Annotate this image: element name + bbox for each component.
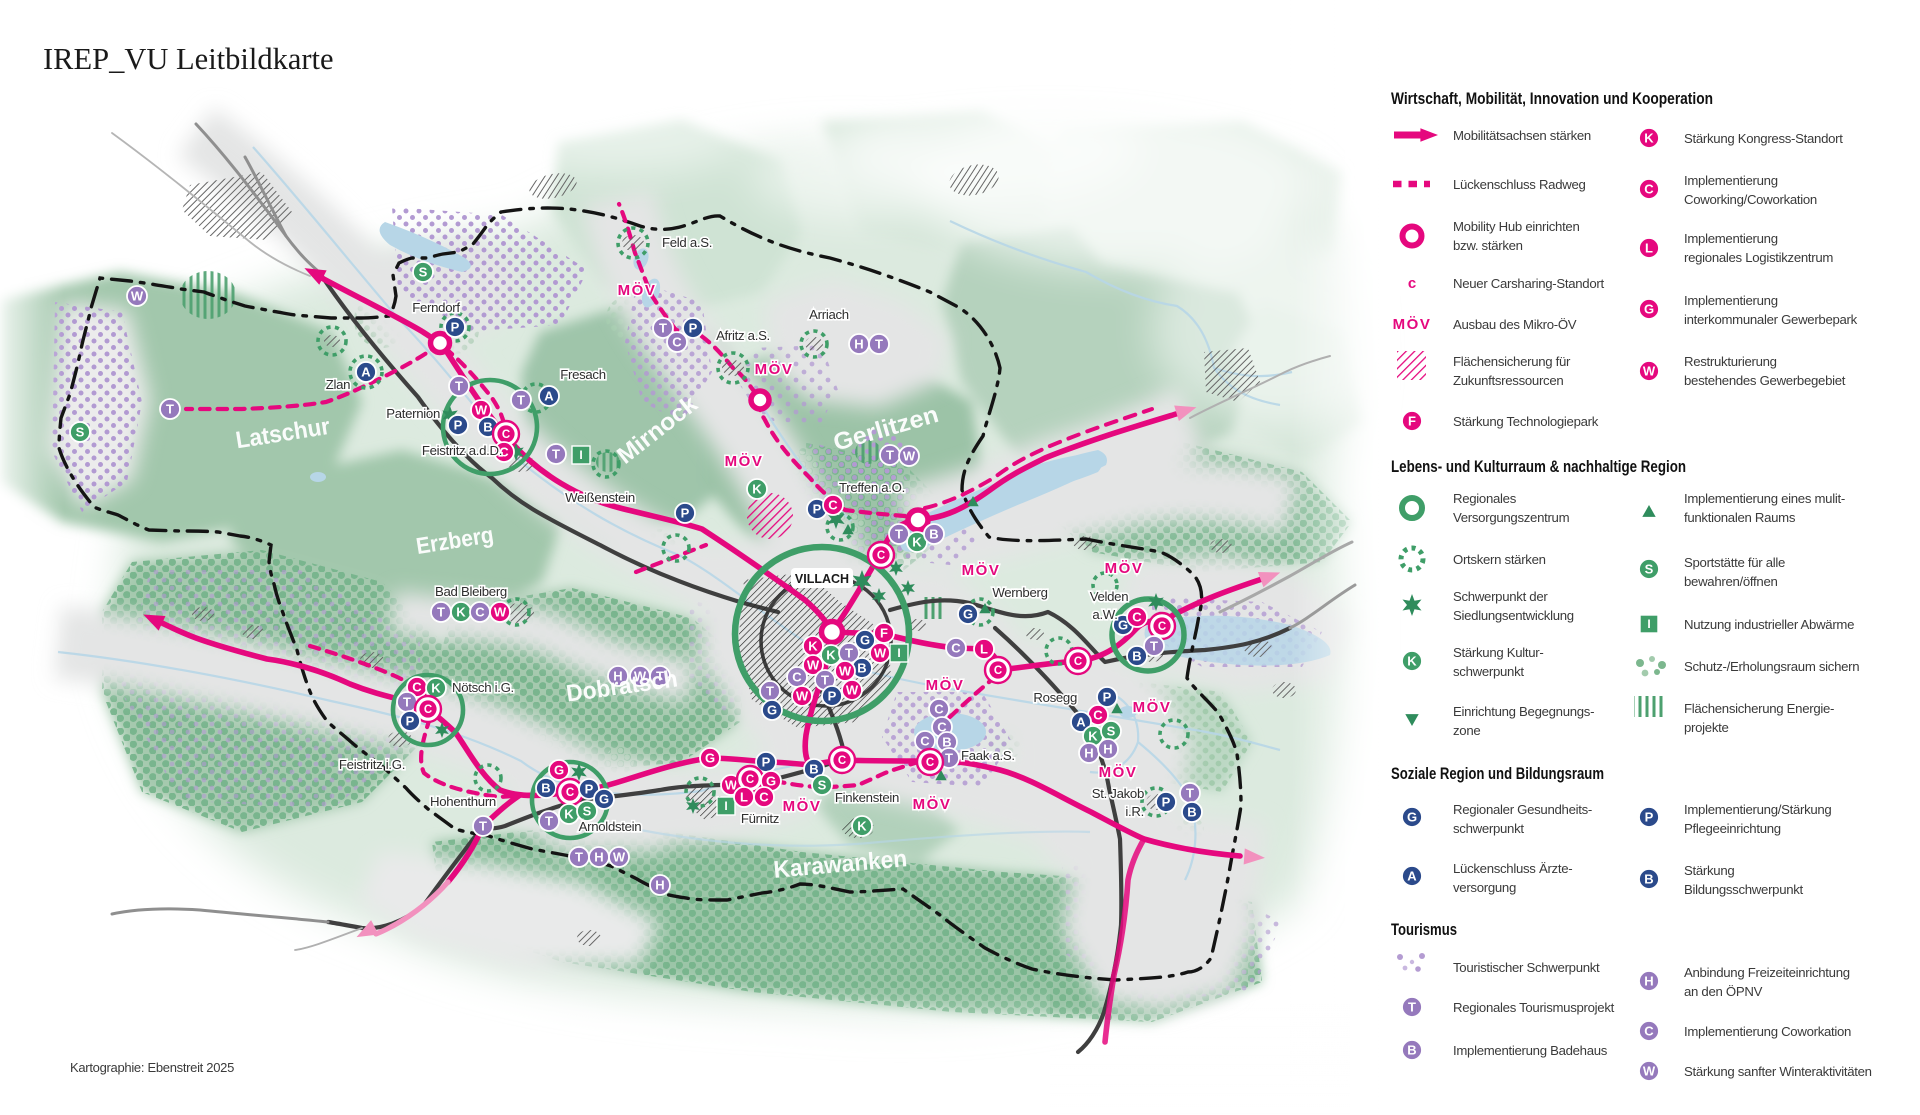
svg-text:projekte: projekte: [1684, 720, 1729, 735]
svg-text:Implementierung: Implementierung: [1684, 293, 1778, 308]
svg-text:MÖV: MÖV: [1133, 699, 1172, 716]
svg-text:Paternion: Paternion: [386, 406, 440, 421]
svg-text:Lebens- und Kulturraum & nachh: Lebens- und Kulturraum & nachhaltige Reg…: [1391, 457, 1686, 476]
svg-text:Sportstätte für alle: Sportstätte für alle: [1684, 555, 1785, 570]
svg-text:c: c: [1408, 275, 1416, 292]
svg-text:G: G: [963, 607, 973, 622]
svg-text:W: W: [475, 403, 488, 418]
svg-text:Kartographie: Ebenstreit 2025: Kartographie: Ebenstreit 2025: [70, 1060, 234, 1075]
svg-text:C: C: [672, 335, 682, 350]
svg-text:C: C: [502, 429, 510, 441]
svg-text:H: H: [854, 337, 863, 352]
svg-text:A: A: [1076, 715, 1086, 730]
svg-text:funktionalen Raums: funktionalen Raums: [1684, 510, 1796, 525]
svg-text:MÖV: MÖV: [1105, 560, 1144, 577]
svg-text:MÖV: MÖV: [755, 361, 794, 378]
svg-text:Coworking/Coworkation: Coworking/Coworkation: [1684, 192, 1817, 207]
svg-text:G: G: [705, 751, 715, 766]
svg-text:Regionales Tourismusprojekt: Regionales Tourismusprojekt: [1453, 1000, 1615, 1015]
svg-text:Wirtschaft, Mobilität, Innovat: Wirtschaft, Mobilität, Innovation und Ko…: [1391, 89, 1713, 108]
svg-text:bestehendes Gewerbegebiet: bestehendes Gewerbegebiet: [1684, 373, 1846, 388]
svg-text:Touristischer Schwerpunkt: Touristischer Schwerpunkt: [1453, 960, 1600, 975]
svg-text:Schutz-/Erholungsraum sichern: Schutz-/Erholungsraum sichern: [1684, 659, 1859, 674]
svg-text:P: P: [813, 502, 822, 517]
svg-text:Finkenstein: Finkenstein: [835, 790, 899, 805]
svg-text:T: T: [403, 695, 411, 710]
svg-text:C: C: [951, 641, 961, 656]
svg-text:W: W: [874, 646, 887, 661]
svg-text:G: G: [767, 703, 777, 718]
svg-text:G: G: [1644, 302, 1654, 317]
svg-text:P: P: [1103, 690, 1112, 705]
svg-text:H: H: [1103, 742, 1112, 757]
svg-text:P: P: [681, 506, 690, 521]
svg-text:Treffen a.O.: Treffen a.O.: [839, 480, 905, 495]
svg-text:Ferndorf: Ferndorf: [412, 300, 460, 315]
svg-text:K: K: [857, 819, 867, 834]
svg-text:Lückenschluss Radweg: Lückenschluss Radweg: [1453, 177, 1586, 192]
svg-text:G: G: [599, 792, 609, 807]
svg-text:L: L: [740, 790, 748, 805]
svg-text:C: C: [994, 665, 1002, 677]
svg-text:Stärkung Technologiepark: Stärkung Technologiepark: [1453, 414, 1599, 429]
svg-text:Implementierung: Implementierung: [1684, 231, 1778, 246]
svg-text:A: A: [361, 365, 371, 380]
svg-text:T: T: [166, 402, 174, 417]
svg-text:C: C: [1158, 621, 1166, 633]
svg-text:IREP_VU Leitbildkarte: IREP_VU Leitbildkarte: [43, 42, 334, 76]
svg-text:C: C: [566, 787, 574, 799]
svg-text:Lückenschluss Ärzte-: Lückenschluss Ärzte-: [1453, 861, 1572, 876]
svg-text:Fresach: Fresach: [560, 367, 606, 382]
svg-text:P: P: [689, 321, 698, 336]
svg-text:Implementierung Badehaus: Implementierung Badehaus: [1453, 1043, 1608, 1058]
svg-text:Soziale Region und Bildungsrau: Soziale Region und Bildungsraum: [1391, 764, 1604, 783]
svg-text:i.R.: i.R.: [1125, 804, 1144, 819]
svg-text:C: C: [424, 704, 432, 716]
svg-text:B: B: [857, 661, 866, 676]
svg-text:L: L: [1645, 241, 1653, 256]
svg-text:T: T: [517, 393, 525, 408]
svg-text:Bad Bleiberg: Bad Bleiberg: [435, 584, 507, 599]
svg-text:Mobility Hub einrichten: Mobility Hub einrichten: [1453, 219, 1580, 234]
svg-text:K: K: [1088, 729, 1098, 744]
svg-text:Flächensicherung Energie-: Flächensicherung Energie-: [1684, 701, 1834, 716]
svg-text:I: I: [724, 799, 727, 813]
svg-text:F: F: [1408, 414, 1416, 429]
svg-text:K: K: [752, 482, 762, 497]
svg-text:C: C: [475, 605, 485, 620]
svg-text:Fürnitz: Fürnitz: [741, 811, 779, 826]
svg-text:C: C: [926, 757, 934, 769]
svg-text:T: T: [845, 646, 853, 661]
svg-text:L: L: [980, 642, 988, 657]
svg-text:Velden: Velden: [1090, 589, 1129, 604]
svg-text:MÖV: MÖV: [913, 796, 952, 813]
svg-text:C: C: [792, 670, 802, 685]
svg-text:C: C: [1132, 610, 1142, 625]
svg-text:St. Jakob: St. Jakob: [1092, 786, 1144, 801]
svg-text:schwerpunkt: schwerpunkt: [1453, 664, 1524, 679]
svg-text:S: S: [76, 425, 85, 440]
svg-text:Afritz a.S.: Afritz a.S.: [716, 328, 770, 343]
svg-text:T: T: [479, 819, 487, 834]
svg-text:Mobilitätsachsen stärken: Mobilitätsachsen stärken: [1453, 128, 1591, 143]
svg-text:W: W: [1643, 1064, 1656, 1079]
svg-text:T: T: [659, 321, 667, 336]
svg-text:G: G: [554, 763, 564, 778]
svg-text:Zlan: Zlan: [326, 377, 350, 392]
svg-text:Nötsch i.G.: Nötsch i.G.: [452, 680, 514, 695]
svg-text:K: K: [808, 639, 818, 654]
svg-text:W: W: [839, 664, 852, 679]
svg-text:Anbindung Freizeiteinrichtung: Anbindung Freizeiteinrichtung: [1684, 965, 1850, 980]
svg-text:MÖV: MÖV: [1099, 764, 1138, 781]
svg-text:MÖV: MÖV: [618, 282, 657, 299]
svg-text:Bildungsschwerpunkt: Bildungsschwerpunkt: [1684, 882, 1804, 897]
svg-text:B: B: [1407, 1043, 1416, 1058]
svg-text:P: P: [1162, 795, 1171, 810]
svg-text:Siedlungsentwicklung: Siedlungsentwicklung: [1453, 608, 1574, 623]
svg-text:VILLACH: VILLACH: [795, 572, 849, 586]
svg-text:zone: zone: [1453, 723, 1480, 738]
svg-text:Arnoldstein: Arnoldstein: [579, 819, 642, 834]
svg-text:C: C: [828, 498, 838, 513]
svg-text:W: W: [494, 605, 507, 620]
svg-text:T: T: [945, 751, 953, 766]
svg-text:MÖV: MÖV: [926, 677, 965, 694]
svg-text:W: W: [796, 689, 809, 704]
svg-text:H: H: [1084, 746, 1093, 761]
svg-text:H: H: [594, 850, 603, 865]
svg-text:F: F: [880, 626, 888, 641]
svg-text:versorgung: versorgung: [1453, 880, 1516, 895]
svg-text:schwerpunkt: schwerpunkt: [1453, 821, 1524, 836]
svg-text:C: C: [412, 680, 422, 695]
svg-text:MÖV: MÖV: [962, 562, 1001, 579]
svg-text:Neuer Carsharing-Standort: Neuer Carsharing-Standort: [1453, 276, 1604, 291]
svg-text:Stärkung sanfter Winteraktivit: Stärkung sanfter Winteraktivitäten: [1684, 1064, 1872, 1079]
svg-text:H: H: [1644, 974, 1653, 989]
svg-text:K: K: [564, 807, 574, 822]
svg-text:Versorgungszentrum: Versorgungszentrum: [1453, 510, 1570, 525]
svg-text:interkommunaler Gewerbepark: interkommunaler Gewerbepark: [1684, 312, 1858, 327]
svg-text:B: B: [483, 420, 492, 435]
svg-text:Implementierung Coworkation: Implementierung Coworkation: [1684, 1024, 1851, 1039]
svg-text:Nutzung industrieller Abwärme: Nutzung industrieller Abwärme: [1684, 617, 1854, 632]
svg-text:P: P: [1645, 810, 1654, 825]
svg-text:S: S: [818, 778, 827, 793]
svg-text:Ortskern stärken: Ortskern stärken: [1453, 552, 1546, 567]
svg-text:T: T: [895, 527, 903, 542]
svg-text:C: C: [1644, 1024, 1654, 1039]
svg-text:P: P: [762, 755, 771, 770]
svg-text:T: T: [455, 379, 463, 394]
svg-text:Einrichtung Begegnungs-: Einrichtung Begegnungs-: [1453, 704, 1594, 719]
svg-text:Feistritz i.G.: Feistritz i.G.: [339, 757, 405, 772]
svg-text:H: H: [655, 878, 664, 893]
svg-text:T: T: [1408, 1000, 1416, 1015]
svg-text:Rosegg: Rosegg: [1033, 690, 1077, 705]
svg-text:T: T: [875, 337, 883, 352]
svg-text:Wernberg: Wernberg: [992, 585, 1047, 600]
svg-text:P: P: [454, 418, 463, 433]
svg-text:Pflegeeinrichtung: Pflegeeinrichtung: [1684, 821, 1781, 836]
svg-text:Restrukturierung: Restrukturierung: [1684, 354, 1777, 369]
svg-text:A: A: [1407, 869, 1417, 884]
svg-text:C: C: [759, 790, 769, 805]
svg-text:G: G: [766, 774, 776, 789]
svg-text:T: T: [886, 448, 894, 463]
svg-text:B: B: [1187, 805, 1196, 820]
svg-text:Stärkung Kultur-: Stärkung Kultur-: [1453, 645, 1544, 660]
svg-text:C: C: [920, 734, 930, 749]
svg-text:T: T: [766, 684, 774, 699]
svg-text:Implementierung: Implementierung: [1684, 173, 1778, 188]
svg-text:Zukunftsressourcen: Zukunftsressourcen: [1453, 373, 1563, 388]
svg-text:T: T: [545, 814, 553, 829]
svg-text:P: P: [451, 320, 460, 335]
svg-text:W: W: [846, 683, 859, 698]
svg-text:I: I: [579, 448, 582, 462]
svg-text:T: T: [1150, 639, 1158, 654]
svg-text:K: K: [1644, 131, 1654, 146]
svg-text:MÖV: MÖV: [783, 798, 822, 815]
svg-text:K: K: [826, 648, 836, 663]
svg-text:Faak a.S.: Faak a.S.: [961, 748, 1015, 763]
svg-text:S: S: [1107, 724, 1116, 739]
svg-text:Feistritz a.d.D.: Feistritz a.d.D.: [422, 443, 502, 458]
svg-text:Implementierung eines mulit-: Implementierung eines mulit-: [1684, 491, 1845, 506]
svg-text:C: C: [1093, 708, 1103, 723]
svg-text:C: C: [877, 550, 885, 562]
svg-text:Arriach: Arriach: [809, 307, 849, 322]
svg-text:Hohenthurn: Hohenthurn: [430, 794, 496, 809]
svg-text:C: C: [934, 702, 944, 717]
svg-text:P: P: [406, 714, 415, 729]
svg-text:B: B: [1644, 872, 1653, 887]
svg-text:W: W: [131, 289, 144, 304]
svg-text:T: T: [437, 605, 445, 620]
svg-text:C: C: [1644, 182, 1654, 197]
svg-text:K: K: [912, 535, 922, 550]
svg-text:bzw. stärken: bzw. stärken: [1453, 238, 1523, 253]
svg-text:B: B: [929, 527, 938, 542]
svg-text:C: C: [1074, 656, 1082, 668]
svg-text:Ausbau des Mikro-ÖV: Ausbau des Mikro-ÖV: [1453, 317, 1577, 332]
svg-text:T: T: [821, 673, 829, 688]
svg-text:K: K: [456, 605, 466, 620]
svg-text:T: T: [1186, 786, 1194, 801]
svg-text:G: G: [1407, 810, 1417, 825]
svg-text:Regionales: Regionales: [1453, 491, 1517, 506]
svg-text:B: B: [1132, 649, 1141, 664]
svg-text:W: W: [903, 449, 916, 464]
svg-text:S: S: [583, 804, 592, 819]
svg-text:C: C: [838, 755, 846, 767]
svg-text:Regionaler Gesundheits-: Regionaler Gesundheits-: [1453, 802, 1592, 817]
svg-text:W: W: [613, 850, 626, 865]
svg-text:Stärkung Kongress-Standort: Stärkung Kongress-Standort: [1684, 131, 1843, 146]
svg-text:bewahren/öffnen: bewahren/öffnen: [1684, 574, 1778, 589]
svg-text:B: B: [541, 781, 550, 796]
svg-text:Stärkung: Stärkung: [1684, 863, 1734, 878]
svg-text:W: W: [807, 658, 820, 673]
svg-text:K: K: [1407, 654, 1417, 669]
svg-text:G: G: [860, 633, 870, 648]
svg-text:Implementierung/Stärkung: Implementierung/Stärkung: [1684, 802, 1831, 817]
svg-text:Feld a.S.: Feld a.S.: [662, 235, 712, 250]
svg-text:Flächensicherung für: Flächensicherung für: [1453, 354, 1571, 369]
svg-text:P: P: [828, 689, 837, 704]
svg-text:T: T: [575, 850, 583, 865]
svg-text:I: I: [897, 646, 900, 660]
svg-text:regionales Logistikzentrum: regionales Logistikzentrum: [1684, 250, 1833, 265]
svg-text:P: P: [585, 782, 594, 797]
svg-text:Schwerpunkt der: Schwerpunkt der: [1453, 589, 1548, 604]
svg-text:T: T: [552, 447, 560, 462]
svg-text:MÖV: MÖV: [725, 453, 764, 470]
svg-text:A: A: [544, 389, 554, 404]
svg-text:MÖV: MÖV: [1393, 316, 1432, 333]
svg-text:B: B: [809, 762, 818, 777]
svg-text:Tourismus: Tourismus: [1391, 920, 1457, 939]
svg-text:C: C: [746, 774, 754, 786]
svg-text:S: S: [1645, 562, 1654, 577]
svg-text:W: W: [1643, 364, 1656, 379]
svg-text:S: S: [419, 265, 428, 280]
svg-text:an den ÖPNV: an den ÖPNV: [1684, 984, 1763, 999]
svg-text:K: K: [431, 681, 441, 696]
svg-text:Weißenstein: Weißenstein: [565, 490, 635, 505]
svg-text:I: I: [1647, 617, 1650, 631]
svg-text:a.W.: a.W.: [1092, 607, 1117, 622]
